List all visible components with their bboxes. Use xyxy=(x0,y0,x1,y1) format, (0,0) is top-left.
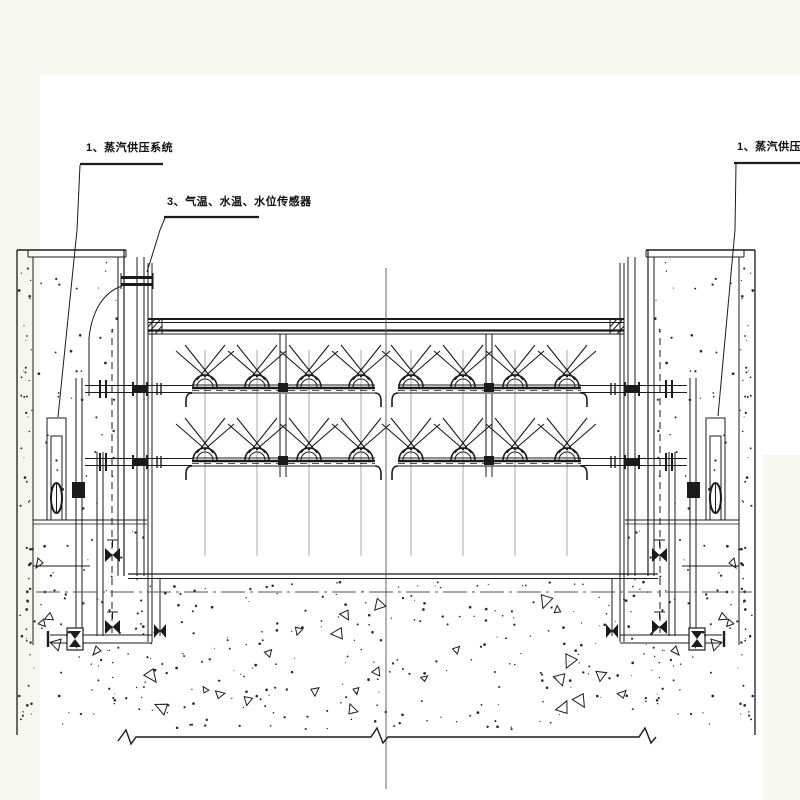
foundation-bottom-line xyxy=(118,728,656,744)
foundation xyxy=(36,581,752,744)
concrete-aggregate xyxy=(135,581,655,731)
drawing-page: 1、蒸汽供压系统 3、气温、水温、水位传感器 1、蒸汽供压系统 xyxy=(0,0,800,800)
annotation-steam-supply-left: 1、蒸汽供压系统 xyxy=(86,139,173,155)
engineering-drawing-svg xyxy=(0,0,800,800)
beam-anchor-block xyxy=(148,319,162,334)
beam-anchor-block xyxy=(610,319,624,334)
annotation-sensors: 3、气温、水温、水位传感器 xyxy=(167,193,312,209)
annotation-steam-supply-right: 1、蒸汽供压系统 xyxy=(737,138,800,154)
sensor-conduit xyxy=(89,273,153,396)
